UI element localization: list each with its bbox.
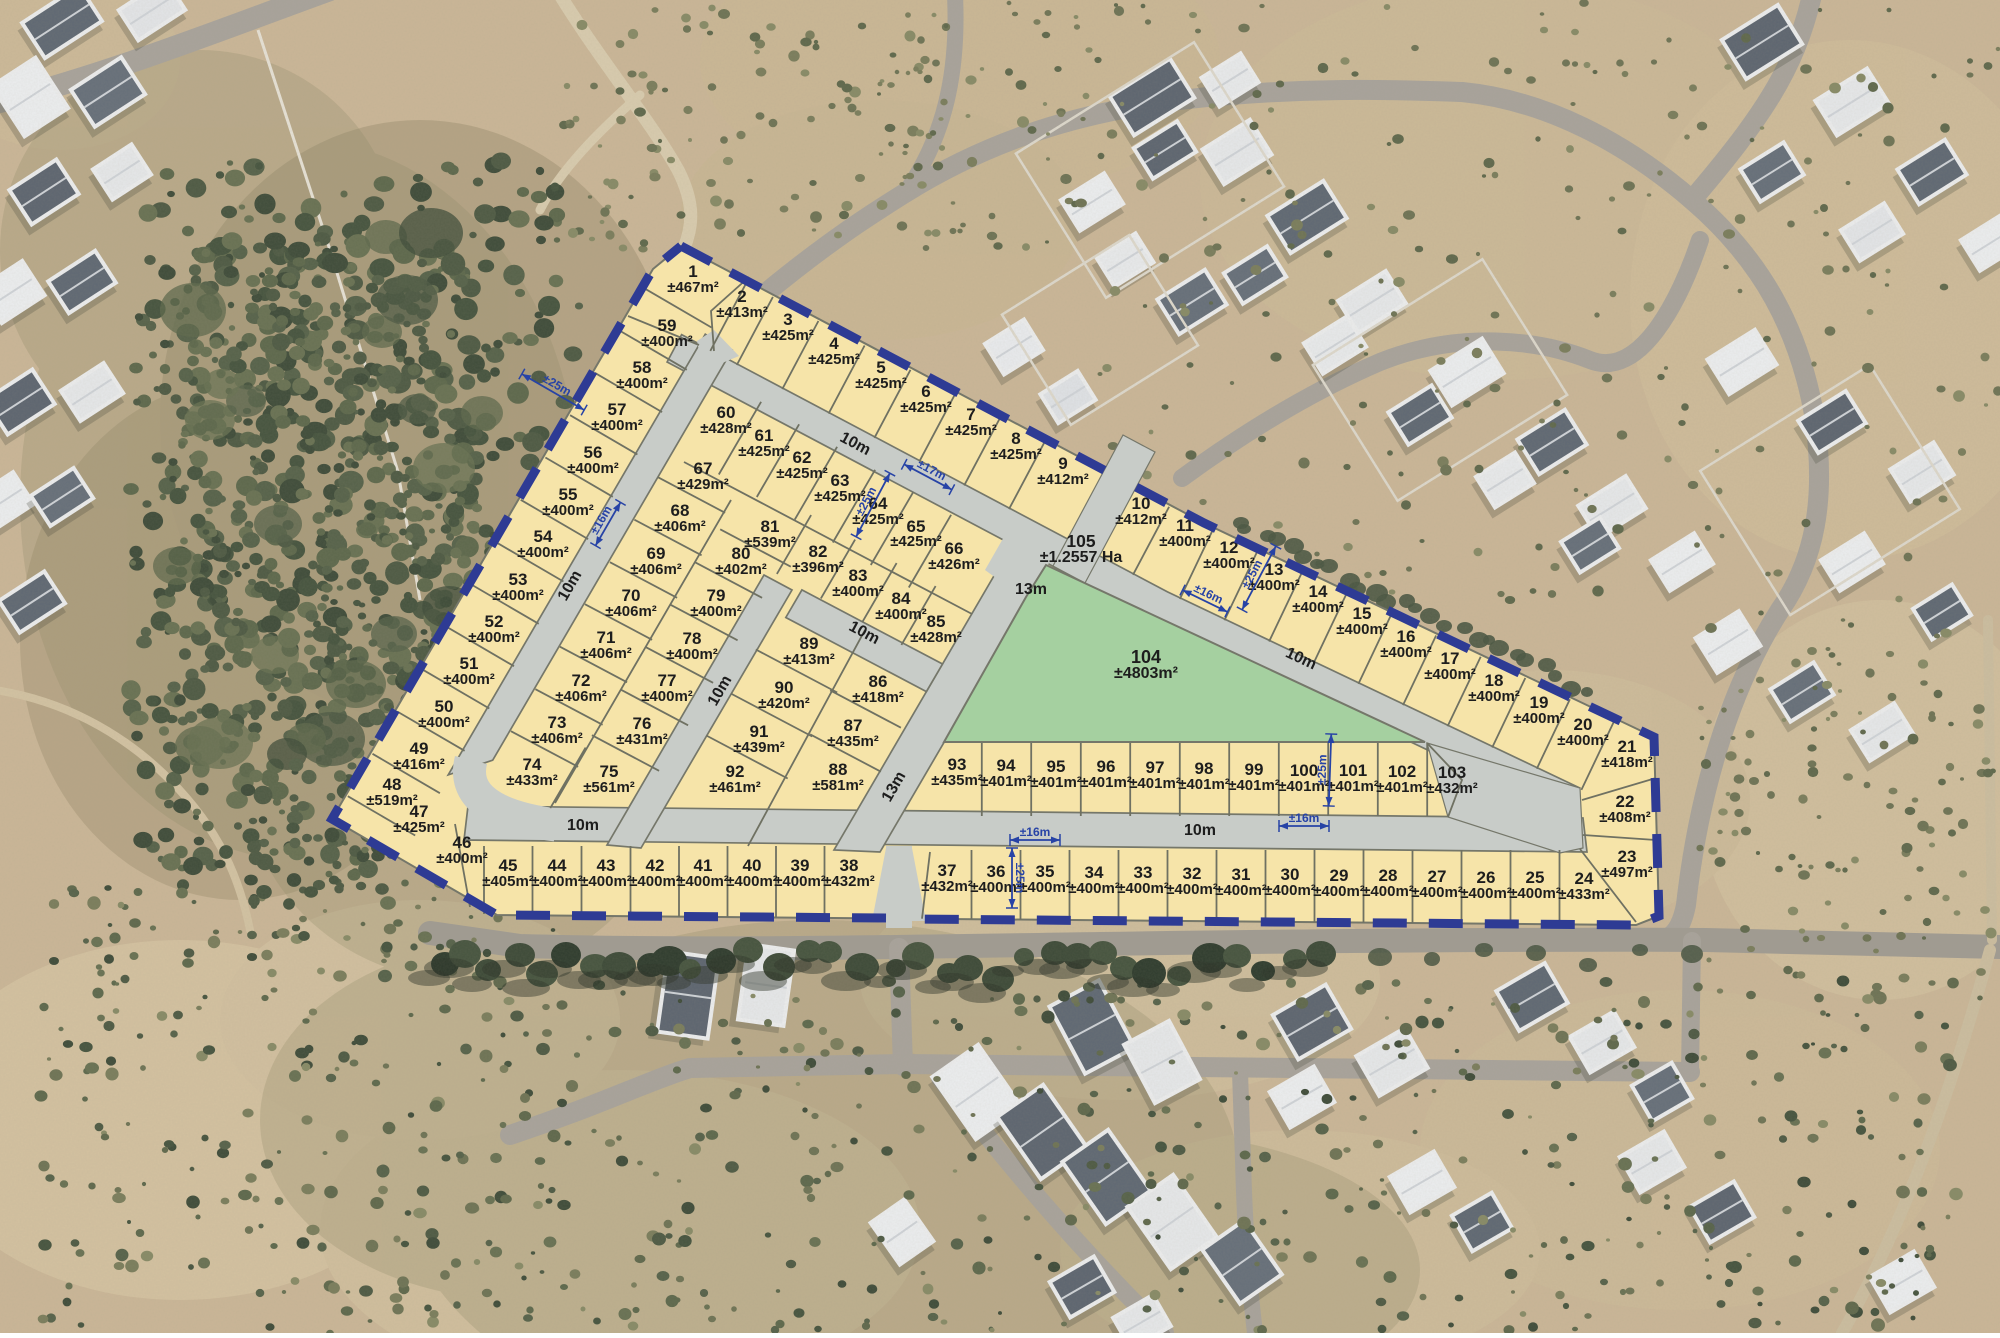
svg-text:±432m²: ±432m² (1426, 780, 1478, 797)
svg-text:±400m²: ±400m² (616, 375, 668, 392)
svg-text:±412m²: ±412m² (1037, 471, 1089, 488)
svg-text:±425m²: ±425m² (890, 533, 942, 550)
svg-text:±425m²: ±425m² (762, 327, 814, 344)
svg-text:±400m²: ±400m² (1509, 885, 1561, 902)
svg-text:±435m²: ±435m² (931, 772, 983, 789)
svg-text:±406m²: ±406m² (580, 645, 632, 662)
svg-text:±400m²: ±400m² (641, 688, 693, 705)
svg-text:±467m²: ±467m² (667, 279, 719, 296)
svg-text:±400m²: ±400m² (1513, 710, 1565, 727)
svg-text:±400m²: ±400m² (1362, 883, 1414, 900)
svg-text:±402m²: ±402m² (715, 561, 767, 578)
svg-text:10m: 10m (1184, 822, 1216, 839)
svg-text:±401m²: ±401m² (1327, 778, 1379, 795)
svg-text:±581m²: ±581m² (812, 777, 864, 794)
svg-text:±425m²: ±425m² (738, 443, 790, 460)
svg-text:105: 105 (1066, 531, 1095, 551)
svg-text:±413m²: ±413m² (783, 651, 835, 668)
svg-text:10m: 10m (567, 817, 599, 834)
svg-text:±400m²: ±400m² (1468, 688, 1520, 705)
svg-text:±400m²: ±400m² (1557, 732, 1609, 749)
svg-text:±406m²: ±406m² (654, 518, 706, 535)
svg-text:±433m²: ±433m² (1558, 886, 1610, 903)
svg-text:±561m²: ±561m² (583, 779, 635, 796)
svg-text:±25m: ±25m (1314, 754, 1329, 785)
svg-text:±539m²: ±539m² (744, 534, 796, 551)
svg-text:±425m²: ±425m² (393, 819, 445, 836)
svg-text:±400m²: ±400m² (726, 873, 778, 890)
svg-text:±4803m²: ±4803m² (1114, 665, 1178, 682)
svg-text:±406m²: ±406m² (555, 688, 607, 705)
svg-text:±420m²: ±420m² (758, 695, 810, 712)
svg-text:±16m: ±16m (1289, 811, 1320, 825)
svg-text:±400m²: ±400m² (1068, 880, 1120, 897)
svg-text:±400m²: ±400m² (418, 714, 470, 731)
svg-text:±16m: ±16m (1020, 825, 1051, 839)
svg-text:±412m²: ±412m² (1115, 511, 1167, 528)
svg-text:±396m²: ±396m² (792, 559, 844, 576)
svg-text:±429m²: ±429m² (677, 476, 729, 493)
svg-text:±400m²: ±400m² (1166, 881, 1218, 898)
svg-text:±425m²: ±425m² (900, 399, 952, 416)
svg-text:±406m²: ±406m² (605, 603, 657, 620)
svg-text:±400m²: ±400m² (1159, 533, 1211, 550)
svg-text:±431m²: ±431m² (616, 731, 668, 748)
svg-text:±406m²: ±406m² (531, 730, 583, 747)
svg-text:±400m²: ±400m² (1264, 882, 1316, 899)
svg-text:±400m²: ±400m² (875, 606, 927, 623)
svg-text:±401m²: ±401m² (1376, 779, 1428, 796)
svg-text:104: 104 (1131, 647, 1161, 667)
svg-text:±425m²: ±425m² (808, 351, 860, 368)
svg-text:±401m²: ±401m² (1129, 775, 1181, 792)
svg-text:±400m²: ±400m² (1424, 666, 1476, 683)
svg-text:±425m²: ±425m² (945, 422, 997, 439)
svg-text:±400m²: ±400m² (531, 873, 583, 890)
svg-text:±400m²: ±400m² (1292, 599, 1344, 616)
svg-text:±416m²: ±416m² (393, 756, 445, 773)
svg-text:±401m²: ±401m² (1030, 774, 1082, 791)
svg-text:±428m²: ±428m² (700, 420, 752, 437)
svg-text:±401m²: ±401m² (1178, 776, 1230, 793)
svg-text:±400m²: ±400m² (629, 873, 681, 890)
svg-text:±432m²: ±432m² (823, 873, 875, 890)
svg-text:±400m²: ±400m² (443, 671, 495, 688)
svg-text:±425m²: ±425m² (990, 446, 1042, 463)
svg-text:±413m²: ±413m² (716, 304, 768, 321)
svg-text:±418m²: ±418m² (852, 689, 904, 706)
svg-text:±1.2557 Ha: ±1.2557 Ha (1040, 549, 1123, 566)
svg-text:±439m²: ±439m² (733, 739, 785, 756)
svg-text:±418m²: ±418m² (1601, 754, 1653, 771)
svg-text:±405m²: ±405m² (482, 873, 534, 890)
svg-text:±461m²: ±461m² (709, 779, 761, 796)
svg-text:±400m²: ±400m² (774, 873, 826, 890)
svg-text:±400m²: ±400m² (468, 629, 520, 646)
svg-text:±400m²: ±400m² (1460, 885, 1512, 902)
svg-text:±425m²: ±425m² (776, 465, 828, 482)
svg-text:±497m²: ±497m² (1601, 864, 1653, 881)
svg-text:±400m²: ±400m² (1380, 644, 1432, 661)
svg-text:±400m²: ±400m² (1336, 621, 1388, 638)
svg-text:±401m²: ±401m² (1080, 774, 1132, 791)
svg-text:±432m²: ±432m² (921, 878, 973, 895)
svg-text:±400m²: ±400m² (436, 850, 488, 867)
svg-text:±400m²: ±400m² (641, 333, 693, 350)
svg-text:±400m²: ±400m² (1411, 884, 1463, 901)
svg-text:±406m²: ±406m² (630, 561, 682, 578)
svg-text:±400m²: ±400m² (1313, 883, 1365, 900)
svg-text:±400m²: ±400m² (1117, 880, 1169, 897)
svg-text:±428m²: ±428m² (910, 629, 962, 646)
svg-text:±400m²: ±400m² (1215, 882, 1267, 899)
svg-text:±400m²: ±400m² (492, 587, 544, 604)
svg-text:±401m²: ±401m² (1228, 777, 1280, 794)
svg-text:±400m²: ±400m² (517, 544, 569, 561)
svg-text:±400m²: ±400m² (567, 460, 619, 477)
svg-text:±425m²: ±425m² (855, 375, 907, 392)
svg-text:±435m²: ±435m² (827, 733, 879, 750)
svg-text:±400m²: ±400m² (666, 646, 718, 663)
svg-text:±400m²: ±400m² (542, 502, 594, 519)
svg-text:±400m²: ±400m² (580, 873, 632, 890)
svg-text:±426m²: ±426m² (928, 556, 980, 573)
svg-text:±401m²: ±401m² (980, 773, 1032, 790)
svg-text:±400m²: ±400m² (591, 417, 643, 434)
svg-text:±400m²: ±400m² (832, 583, 884, 600)
svg-text:13m: 13m (1015, 581, 1047, 598)
svg-text:±25m: ±25m (1013, 863, 1027, 894)
svg-text:±400m²: ±400m² (677, 873, 729, 890)
svg-text:±408m²: ±408m² (1599, 809, 1651, 826)
svg-text:±400m²: ±400m² (690, 603, 742, 620)
svg-text:±433m²: ±433m² (506, 772, 558, 789)
